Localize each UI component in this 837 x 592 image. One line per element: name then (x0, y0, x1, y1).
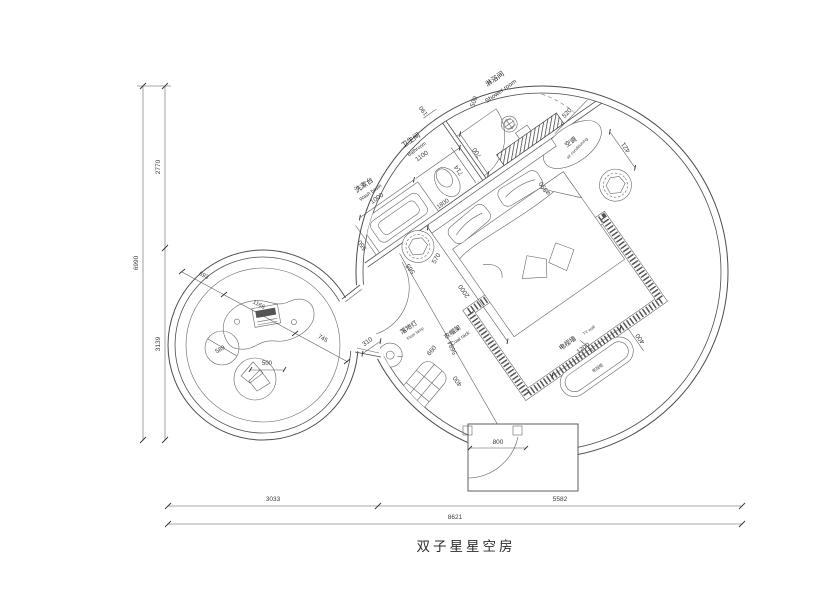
kidney-desk (217, 283, 320, 358)
dim-chain-3: 745 (317, 334, 329, 344)
dim-total-width: 8621 (448, 514, 463, 521)
dim-bedside-h: 570 (431, 252, 443, 265)
lounge-pod: 589 500 693 1166 745 (168, 250, 358, 440)
dim-bottom-right: 5582 (553, 496, 568, 503)
dim-tv-d: 400 (634, 332, 646, 345)
dim-pouf: 589 (215, 345, 227, 356)
left-dimensions: 6990 2770 3139 (133, 83, 171, 443)
dim-beanbag: 500 (262, 361, 273, 367)
plan-title: 双子星星空房 (417, 539, 516, 554)
dim-coat-d: 400 (452, 374, 464, 387)
dim-ac-h: 421 (620, 140, 632, 153)
lounge-dim-chain: 693 1166 745 (179, 269, 350, 364)
dim-bottom-left: 3033 (266, 496, 281, 503)
lounge-outer-wall (168, 250, 358, 440)
corridor-door-swing (376, 262, 409, 334)
dim-headwall: 1800 (436, 198, 451, 211)
dim-wall-top: 190 (418, 104, 429, 116)
lounge-inner-wall (175, 257, 351, 433)
dim-entry-door: 800 (493, 439, 504, 446)
floor-plan-drawing: 589 500 693 1166 745 (0, 0, 837, 592)
bean-bag: 500 (234, 358, 286, 400)
dim-basin-depth: 550 (356, 238, 368, 251)
dim-coat-w: 660 (426, 344, 439, 357)
side-stool-right (593, 163, 638, 208)
bottom-dimensions: 3033 5582 8621 (165, 496, 745, 527)
floor-plan-canvas: 589 500 693 1166 745 (0, 0, 837, 592)
corridor (342, 262, 409, 357)
dim-total-height: 6990 (133, 255, 140, 270)
kidney-desk-top (217, 283, 320, 358)
door-leaf (457, 109, 496, 137)
dim-bed-length: 2000 (457, 283, 471, 299)
entry-vestibule: 800 (463, 424, 578, 491)
vestibule-outline (468, 424, 578, 491)
dim-height-upper: 2770 (155, 159, 162, 174)
dim-height-lower: 3139 (155, 336, 162, 351)
label-tvwall-en: TV wall (582, 324, 596, 336)
